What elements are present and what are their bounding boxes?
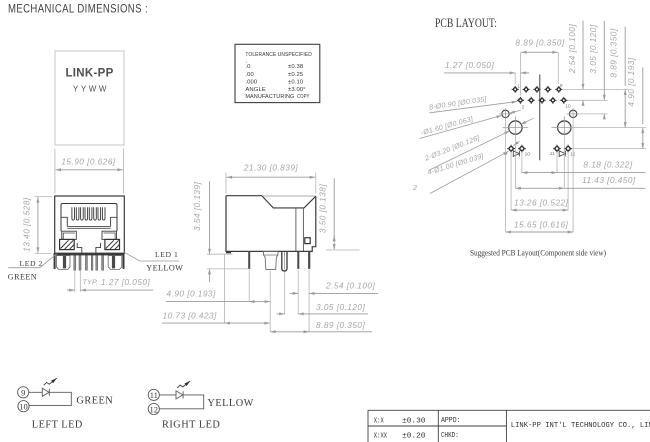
svg-text:LINK-PP: LINK-PP bbox=[65, 68, 113, 80]
svg-text:3.54 [0.139]: 3.54 [0.139] bbox=[192, 181, 202, 230]
svg-text:LED 2: LED 2 bbox=[20, 259, 43, 268]
svg-text:TYP.: TYP. bbox=[83, 278, 99, 286]
svg-text:±0.20: ±0.20 bbox=[402, 433, 426, 441]
svg-text:3.50 [0.138]: 3.50 [0.138] bbox=[317, 184, 327, 233]
svg-text:MECHANICAL DIMENSIONS :: MECHANICAL DIMENSIONS : bbox=[8, 2, 148, 16]
svg-text:RIGHT LED: RIGHT LED bbox=[162, 420, 220, 431]
svg-text:8.89 [0.350]: 8.89 [0.350] bbox=[316, 320, 365, 330]
svg-text:15.65 [0.616]: 15.65 [0.616] bbox=[514, 219, 569, 229]
svg-text:4.90 [0.193]: 4.90 [0.193] bbox=[626, 57, 636, 106]
svg-text:TOLERANCE UNSPECIFIED: TOLERANCE UNSPECIFIED bbox=[245, 52, 312, 58]
svg-text:1.27 [0.050]: 1.27 [0.050] bbox=[445, 60, 494, 70]
svg-text:Suggested PCB Layout(Component: Suggested PCB Layout(Component side view… bbox=[470, 248, 606, 257]
svg-text:9: 9 bbox=[21, 388, 25, 398]
svg-text:13.40 [0.528]: 13.40 [0.528] bbox=[22, 197, 32, 252]
svg-text:YYWW: YYWW bbox=[73, 85, 109, 94]
svg-text:YELLOW: YELLOW bbox=[146, 263, 183, 272]
svg-text:2.54 [0.100]: 2.54 [0.100] bbox=[325, 281, 375, 291]
svg-text:.000: .000 bbox=[245, 80, 257, 86]
svg-text:±0.30: ±0.30 bbox=[402, 417, 426, 425]
svg-text:±0.10: ±0.10 bbox=[288, 80, 304, 86]
svg-text:8.89 [0.350]: 8.89 [0.350] bbox=[515, 38, 564, 48]
svg-text:.00: .00 bbox=[245, 72, 254, 78]
svg-text:4.90 [0.193]: 4.90 [0.193] bbox=[167, 289, 216, 299]
svg-text:12: 12 bbox=[150, 404, 159, 414]
svg-text:11: 11 bbox=[150, 390, 158, 400]
svg-text:11.43 [0.450]: 11.43 [0.450] bbox=[582, 175, 636, 185]
svg-text:21.30 [0.839]: 21.30 [0.839] bbox=[243, 163, 299, 173]
svg-text:1.27 [0.050]: 1.27 [0.050] bbox=[101, 277, 150, 287]
svg-text:ANGLE: ANGLE bbox=[245, 87, 265, 93]
svg-text:13.26 [0.522]: 13.26 [0.522] bbox=[514, 197, 569, 207]
svg-text:.0: .0 bbox=[245, 64, 251, 70]
svg-text:LEFT LED: LEFT LED bbox=[32, 419, 83, 430]
svg-text:11: 11 bbox=[550, 151, 555, 157]
svg-text:2: 2 bbox=[522, 104, 525, 110]
svg-text:±0.25: ±0.25 bbox=[288, 72, 304, 78]
svg-text:MANUFACTURING: MANUFACTURING bbox=[245, 94, 294, 100]
svg-text:LED 1: LED 1 bbox=[155, 250, 178, 259]
svg-text:3.05 [0.120]: 3.05 [0.120] bbox=[316, 302, 365, 312]
svg-text:10: 10 bbox=[565, 103, 571, 109]
svg-text:X:XX: X:XX bbox=[374, 433, 388, 441]
svg-text:10: 10 bbox=[19, 402, 28, 412]
svg-text:PCB LAYOUT:: PCB LAYOUT: bbox=[435, 16, 497, 30]
svg-text:15.90 [0.626]: 15.90 [0.626] bbox=[61, 157, 116, 167]
svg-text:8.89 [0.350]: 8.89 [0.350] bbox=[609, 28, 619, 77]
svg-text:YELLOW: YELLOW bbox=[207, 398, 253, 409]
svg-text:1: 1 bbox=[517, 83, 520, 89]
svg-text:GREEN: GREEN bbox=[8, 273, 37, 282]
svg-text:2.54 [0.100]: 2.54 [0.100] bbox=[567, 24, 577, 74]
svg-text:10.73 [0.423]: 10.73 [0.423] bbox=[163, 311, 218, 321]
svg-text:3.05 [0.120]: 3.05 [0.120] bbox=[588, 24, 598, 73]
svg-text:8.18 [0.322]: 8.18 [0.322] bbox=[583, 159, 632, 169]
svg-text:APPD:: APPD: bbox=[441, 417, 461, 425]
svg-text:CHKD:: CHKD: bbox=[441, 432, 459, 440]
svg-text:±3.00°: ±3.00° bbox=[288, 87, 306, 93]
svg-text:COPY: COPY bbox=[297, 94, 310, 100]
svg-text:LINK-PP INT'L TECHNOLOGY CO.,: LINK-PP INT'L TECHNOLOGY CO., LIM bbox=[511, 422, 650, 430]
svg-text:X:X: X:X bbox=[374, 417, 384, 425]
svg-text:10: 10 bbox=[525, 151, 531, 157]
svg-text:2: 2 bbox=[412, 184, 417, 192]
svg-text:GREEN: GREEN bbox=[76, 396, 113, 407]
svg-text:±0.38: ±0.38 bbox=[288, 64, 304, 70]
svg-text:9: 9 bbox=[560, 83, 563, 89]
